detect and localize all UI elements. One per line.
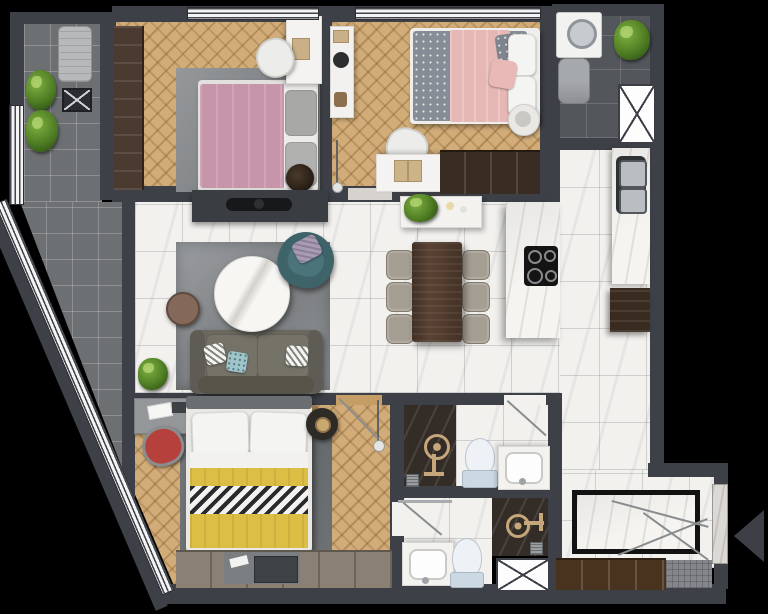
- bathroom1-shower-handle: [424, 472, 444, 476]
- floor-plan: [0, 0, 768, 614]
- water-heater: [558, 58, 590, 104]
- bathroom1-shower-stem: [432, 454, 436, 474]
- hall-console-blossom-2: [460, 206, 467, 213]
- cooktop-burner-3: [527, 268, 543, 284]
- entry-door-panel: [712, 484, 728, 564]
- foyer-entry-mat: [572, 490, 700, 554]
- dining-chair-6: [462, 314, 490, 344]
- bedroom3-tv-screen: [254, 556, 298, 583]
- doormat: [666, 560, 712, 588]
- dining-chair-5: [462, 282, 490, 312]
- wall-right: [650, 4, 664, 477]
- bathroom2-shower-rail: [398, 500, 452, 503]
- bedroom3-desk-tablet: [172, 402, 187, 413]
- bathroom1-toilet-tank: [462, 470, 498, 488]
- entry-arrow: [734, 510, 764, 562]
- window-bedroom1: [188, 8, 318, 19]
- cooktop-burner-1: [528, 250, 542, 264]
- ac-unit: [58, 26, 92, 82]
- bathroom2-basin: [409, 549, 447, 580]
- drain-box: [62, 88, 92, 112]
- bathroom1-floor-drain: [406, 474, 419, 487]
- window-balcony-left: [10, 106, 23, 204]
- bedroom2-wardrobe: [440, 150, 540, 194]
- wall-living-west: [122, 198, 135, 498]
- bedroom3-pendant-lamp: [373, 440, 385, 452]
- bedroom3-lamp: [315, 417, 331, 433]
- bedroom2-pillow-pink: [488, 58, 518, 90]
- bedroom2-console-basket: [334, 92, 347, 107]
- bathroom2-door: [392, 502, 404, 536]
- wall-balcony-left-side: [10, 12, 24, 108]
- sofa-pillow-striped-2: [285, 345, 308, 366]
- kitchen-sink-basin-2: [619, 188, 647, 214]
- bedroom1-pillow-1: [285, 90, 317, 136]
- service-shaft-1: [618, 84, 656, 144]
- bedroom2-desk-book: [394, 160, 422, 182]
- bedroom1-desk-box: [292, 38, 310, 60]
- dining-table: [412, 242, 462, 342]
- tv-stand-dot: [254, 199, 264, 209]
- bedroom2-pendant-cord: [336, 140, 338, 184]
- bathroom2-shower-handle: [539, 513, 543, 531]
- dining-chair-3: [386, 314, 414, 344]
- bedroom1-wardrobe: [114, 26, 144, 190]
- dining-chair-1: [386, 250, 414, 280]
- cooktop-burner-2: [544, 250, 556, 262]
- service-shaft-2: [496, 558, 550, 592]
- balcony-left-diagonal-floor: [20, 202, 122, 468]
- dining-chair-4: [462, 250, 490, 280]
- bedroom3-blanket-yellow-top: [190, 468, 308, 488]
- bedroom1-basket: [286, 164, 314, 192]
- cooktop-burner-4: [545, 270, 557, 282]
- fridge-cabinet: [610, 288, 650, 332]
- bedroom2-pendant-lamp: [332, 182, 343, 193]
- bathroom1-faucet: [519, 478, 526, 485]
- side-table: [166, 292, 200, 326]
- kitchen-sink-basin-1: [619, 160, 647, 188]
- shoe-cabinet: [556, 558, 666, 590]
- bathroom2-floor-drain: [530, 542, 543, 555]
- sofa-pillow-teal: [226, 351, 249, 374]
- bathroom2-faucet: [422, 577, 429, 584]
- bathroom2-toilet-tank: [450, 572, 484, 588]
- bedroom3-pillow-1: [191, 411, 250, 457]
- hall-console-blossom-1: [446, 202, 454, 210]
- bedroom1-bed-duvet-pink: [200, 84, 286, 188]
- bedroom3-headboard: [186, 396, 312, 409]
- bedroom3-blanket-yellow: [190, 514, 308, 548]
- bathroom1-shower-head: [424, 434, 450, 460]
- bedroom2-pouf-cushion: [515, 111, 531, 127]
- window-bedroom2: [356, 8, 540, 19]
- bedroom2-console-box: [333, 30, 349, 43]
- dining-chair-2: [386, 282, 414, 312]
- sofa-backrest: [198, 376, 314, 394]
- washing-machine-drum: [567, 19, 597, 49]
- bathroom2-shower-head: [506, 514, 530, 538]
- bedroom3-blanket-chevron: [190, 486, 308, 516]
- bedroom3-pillow-2: [249, 411, 308, 457]
- bedroom2-console-mirror: [333, 52, 349, 68]
- wall-balcony-left-top: [10, 12, 110, 24]
